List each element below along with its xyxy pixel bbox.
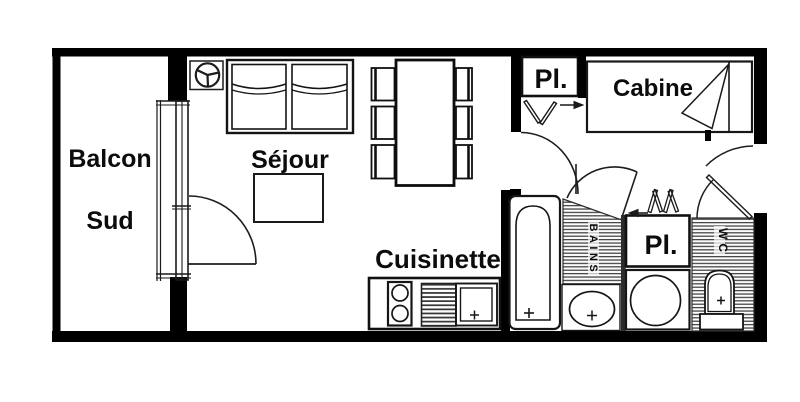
- svg-text:Sud: Sud: [86, 207, 133, 235]
- svg-text:Cabine: Cabine: [613, 75, 693, 102]
- svg-text:WC: WC: [716, 228, 730, 256]
- svg-text:Pl.: Pl.: [534, 64, 567, 94]
- svg-text:Pl.: Pl.: [644, 230, 677, 260]
- svg-text:Balcon: Balcon: [68, 145, 151, 173]
- svg-text:BAINS: BAINS: [587, 224, 599, 276]
- svg-text:Séjour: Séjour: [251, 146, 329, 174]
- svg-text:Cuisinette: Cuisinette: [375, 244, 501, 274]
